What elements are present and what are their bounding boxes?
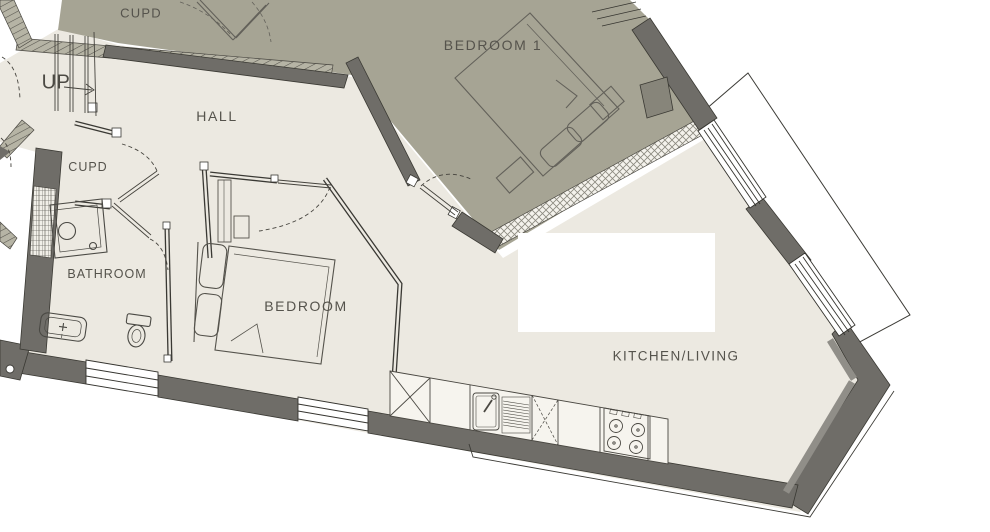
room-label-cupd-hall: CUPD: [68, 160, 107, 174]
floor-plan-drawing: [0, 0, 990, 532]
exterior-marker: [6, 365, 14, 373]
room-label-kitchen-living: KITCHEN/LIVING: [613, 349, 740, 364]
room-label-bathroom: BATHROOM: [67, 267, 146, 281]
floor-plan-canvas: CUPD BEDROOM 1 UP HALL CUPD BATHROOM BED…: [0, 0, 990, 532]
room-label-bedroom: BEDROOM: [264, 298, 348, 314]
room-label-bedroom1: BEDROOM 1: [444, 37, 542, 53]
room-label-cupd-top: CUPD: [120, 6, 162, 21]
stairs-up-label: UP: [42, 72, 71, 95]
room-label-hall: HALL: [196, 108, 237, 124]
blank-overlay-rect: [518, 233, 715, 332]
